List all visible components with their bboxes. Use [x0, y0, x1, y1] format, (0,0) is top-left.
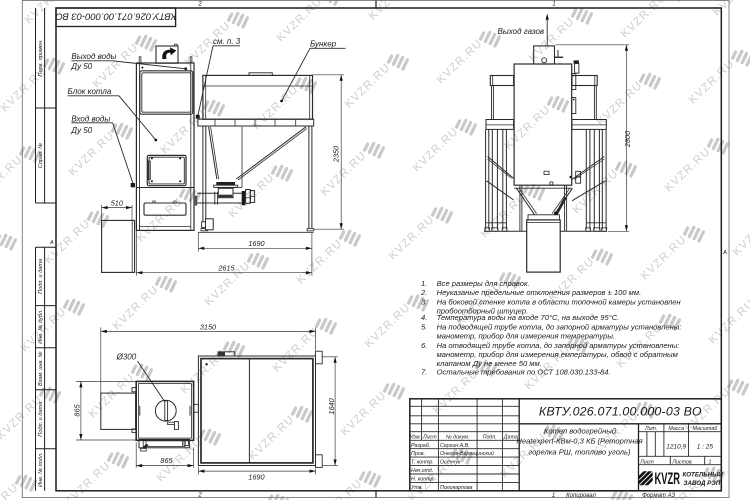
svg-text:510: 510 — [111, 199, 123, 208]
svg-text:KVZR: KVZR — [655, 470, 681, 488]
svg-text:Лист: Лист — [639, 459, 654, 465]
svg-text:Поликарпова: Поликарпова — [440, 485, 473, 491]
svg-text:KVZR.RU: KVZR.RU — [595, 79, 645, 128]
svg-text:Остальные требования по ОСТ 10: Остальные требования по ОСТ 108.030.133-… — [437, 368, 611, 377]
svg-text:2800: 2800 — [623, 131, 632, 148]
svg-text:Инв. № подл.: Инв. № подл. — [38, 452, 44, 487]
svg-text:Утв.: Утв. — [411, 485, 423, 491]
svg-text:манометр, прибор для измерения: манометр, прибор для измерения температу… — [437, 332, 615, 341]
svg-text:KVZR.RU: KVZR.RU — [663, 145, 713, 194]
svg-text:Подп. и дата: Подп. и дата — [38, 259, 44, 294]
svg-text:см. п. 3: см. п. 3 — [213, 37, 241, 46]
svg-text:2: 2 — [197, 1, 202, 7]
svg-text:Блок котла: Блок котла — [68, 87, 112, 96]
svg-text:KVZR.RU: KVZR.RU — [707, 297, 750, 346]
svg-text:KVZR.RU: KVZR.RU — [639, 233, 689, 282]
svg-text:Н. контр.: Н. контр. — [411, 477, 435, 483]
svg-text:KVZR.RU: KVZR.RU — [315, 477, 365, 500]
svg-text:КОТЕЛЬНЫЙ: КОТЕЛЬНЫЙ — [683, 471, 724, 479]
svg-text:Лит.: Лит. — [644, 426, 657, 432]
svg-text:А: А — [722, 250, 727, 256]
svg-text:2615: 2615 — [217, 263, 235, 272]
svg-text:KVZR.RU: KVZR.RU — [343, 61, 393, 110]
svg-text:Лист: Лист — [422, 434, 437, 440]
svg-text:На боковой стенке котла в обла: На боковой стенке котла в области топочн… — [437, 297, 682, 306]
svg-text:6.: 6. — [421, 341, 427, 350]
svg-text:Вход воды: Вход воды — [71, 114, 110, 123]
svg-text:KVZR.RU: KVZR.RU — [0, 153, 25, 202]
svg-text:KVZR.RU: KVZR.RU — [111, 283, 161, 332]
svg-text:ЗАВОД РЭП: ЗАВОД РЭП — [684, 480, 721, 487]
svg-text:1 : 25: 1 : 25 — [697, 444, 714, 451]
svg-text:KVZR.RU: KVZR.RU — [435, 37, 485, 86]
svg-text:Пров.: Пров. — [411, 451, 425, 457]
svg-text:KVZR.RU: KVZR.RU — [275, 0, 325, 44]
svg-text:№ докум.: № докум. — [446, 434, 469, 440]
svg-text:7.: 7. — [421, 368, 427, 377]
svg-text:1210,9: 1210,9 — [666, 444, 686, 451]
svg-text:Ду 50: Ду 50 — [70, 126, 92, 135]
svg-text:4.: 4. — [421, 313, 427, 322]
svg-text:1: 1 — [552, 493, 555, 499]
svg-text:Ду 50: Ду 50 — [70, 62, 92, 71]
svg-text:KVZR.RU: KVZR.RU — [339, 389, 389, 438]
svg-text:KVZR.RU: KVZR.RU — [731, 209, 750, 258]
svg-text:Масса: Масса — [668, 426, 684, 432]
svg-text:Инв. № дубл.: Инв. № дубл. — [38, 309, 44, 343]
svg-text:Формат А3: Формат А3 — [642, 493, 675, 499]
svg-text:KVZR.RU: KVZR.RU — [367, 0, 417, 22]
svg-text:865: 865 — [160, 456, 173, 465]
svg-text:Ø300: Ø300 — [116, 352, 137, 361]
svg-text:Взам. инв. №: Взам. инв. № — [38, 351, 44, 386]
svg-text:KVZR.RU: KVZR.RU — [687, 57, 737, 106]
svg-text:Листов: Листов — [671, 459, 692, 465]
svg-text:Бункер: Бункер — [310, 39, 337, 48]
svg-text:Дата: Дата — [503, 434, 518, 440]
svg-text:1690: 1690 — [248, 473, 264, 482]
svg-text:Изм.: Изм. — [410, 434, 421, 440]
svg-text:KVZR.RU: KVZR.RU — [87, 371, 137, 420]
svg-text:KVZR.RU: KVZR.RU — [247, 413, 297, 462]
svg-text:KVZR.RU: KVZR.RU — [227, 171, 277, 220]
svg-text:Сергин А.В.: Сергин А.В. — [440, 443, 470, 449]
svg-text:Все размеры для справок.: Все размеры для справок. — [437, 279, 530, 288]
svg-text:1640: 1640 — [327, 398, 336, 414]
svg-text:Перв. примен.: Перв. примен. — [38, 39, 44, 76]
svg-text:Неуказаные предельные отклонен: Неуказаные предельные отклонения размеро… — [437, 288, 642, 297]
svg-text:Нач.отд.: Нач.отд. — [411, 468, 433, 474]
svg-text:1: 1 — [552, 1, 555, 7]
svg-text:На подводящей трубе котла, до: На подводящей трубе котла, до запорной а… — [437, 322, 682, 331]
svg-text:манометр, прибор для измерения: манометр, прибор для измерения емператур… — [437, 350, 679, 359]
svg-text:KVZR.RU: KVZR.RU — [527, 15, 577, 64]
svg-text:Котел водогрейный: Котел водогрейный — [544, 426, 617, 435]
svg-text:865: 865 — [73, 403, 82, 416]
svg-text:KVZR.RU: KVZR.RU — [91, 41, 141, 90]
svg-text:1: 1 — [709, 459, 712, 465]
svg-text:2: 2 — [197, 493, 202, 499]
svg-text:2.: 2. — [420, 288, 427, 297]
svg-text:Осенчук: Осенчук — [440, 460, 461, 466]
svg-text:KVZR.RU: KVZR.RU — [411, 125, 461, 174]
svg-text:KVZR.RU: KVZR.RU — [711, 0, 750, 18]
svg-text:KVZR.RU: KVZR.RU — [387, 213, 437, 262]
svg-text:КВТУ.026.071.00.000-03 ВО: КВТУ.026.071.00.000-03 ВО — [55, 11, 177, 22]
svg-text:Выход воды: Выход воды — [71, 52, 116, 61]
svg-text:1.: 1. — [421, 279, 427, 288]
svg-text:Масштаб: Масштаб — [693, 426, 719, 432]
svg-text:2350: 2350 — [332, 146, 341, 163]
svg-text:KVZR.RU: KVZR.RU — [619, 0, 669, 40]
svg-text:KVZR.RU: KVZR.RU — [363, 301, 413, 350]
svg-text:Онегов-Верещинский: Онегов-Верещинский — [440, 450, 494, 457]
svg-text:KVZR.RU: KVZR.RU — [63, 459, 113, 500]
svg-text:Разраб.: Разраб. — [411, 443, 430, 449]
svg-text:KVZR.RU: KVZR.RU — [503, 103, 553, 152]
svg-text:Справ. №: Справ. № — [38, 143, 44, 168]
svg-text:KVZR.RU: KVZR.RU — [67, 129, 117, 178]
svg-text:Выход газов: Выход газов — [498, 27, 545, 36]
svg-text:5.: 5. — [421, 322, 427, 331]
svg-text:А: А — [49, 240, 54, 246]
svg-text:3150: 3150 — [200, 322, 216, 331]
svg-text:Температура воды на входе 70°С: Температура воды на входе 70°С, на выход… — [437, 313, 620, 322]
svg-text:Подп.: Подп. — [483, 434, 497, 440]
svg-text:1690: 1690 — [248, 239, 264, 248]
svg-text:На отводящей трубе котла, до з: На отводящей трубе котла, до запорной ар… — [437, 341, 680, 350]
svg-text:KVZR.RU: KVZR.RU — [0, 241, 1, 290]
svg-text:Heatexpert-КВм-0,3 КБ (Ретортн: Heatexpert-КВм-0,3 КБ (Ретортная — [516, 437, 642, 446]
svg-text:3.: 3. — [421, 297, 427, 306]
svg-text:Подп. и дата: Подп. и дата — [38, 402, 44, 437]
svg-text:KVZR.RU: KVZR.RU — [295, 237, 345, 286]
svg-text:горелка РШ, топливо уголь): горелка РШ, топливо уголь) — [528, 447, 631, 456]
svg-text:КВТУ.026.071.00.000-03 ВО: КВТУ.026.071.00.000-03 ВО — [539, 404, 702, 418]
svg-text:KVZR.RU: KVZR.RU — [251, 83, 301, 132]
svg-text:Копировал: Копировал — [566, 493, 596, 499]
svg-text:KVZR.RU: KVZR.RU — [319, 149, 369, 198]
svg-text:Т. контр.: Т. контр. — [411, 460, 434, 466]
